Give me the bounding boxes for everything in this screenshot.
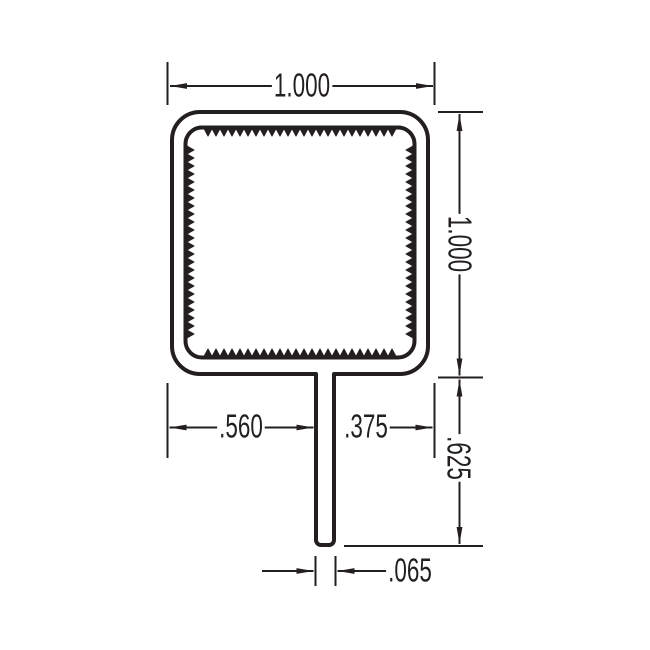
serration-group — [187, 129, 413, 357]
dim-label-stem-offset-left: .560 — [217, 410, 265, 445]
dim-label-overall-width: 1.000 — [272, 69, 332, 104]
technical-drawing-canvas: 1.000 1.000 .560 .375 .625 .065 — [0, 0, 650, 650]
dim-label-stem-length: .625 — [441, 434, 476, 482]
serration-left-icon — [187, 146, 194, 338]
dim-label-overall-height: 1.000 — [442, 214, 477, 274]
serration-top-icon — [204, 129, 396, 137]
serration-bottom-icon — [204, 349, 396, 357]
profile-outer-outline-with-stem — [172, 112, 428, 545]
profile-inner-outline — [186, 128, 415, 358]
profile-outline-group — [172, 112, 428, 545]
dim-label-stem-thickness: .065 — [386, 554, 434, 589]
serration-right-icon — [406, 146, 413, 338]
dim-label-stem-offset-right: .375 — [342, 410, 390, 445]
